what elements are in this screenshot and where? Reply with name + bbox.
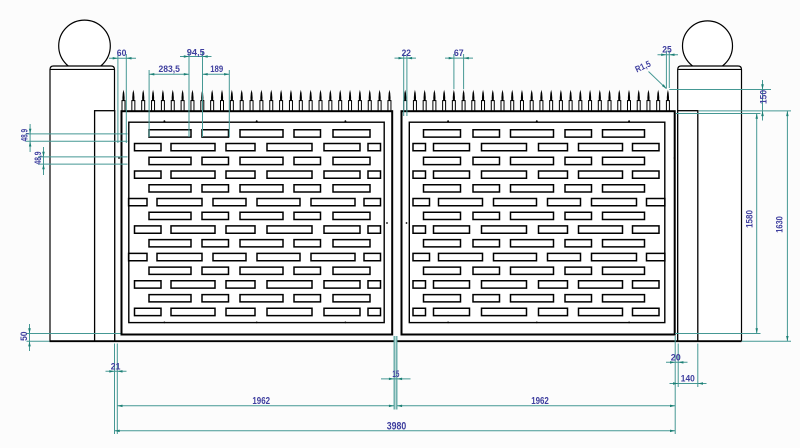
svg-text:50: 50 (19, 332, 29, 341)
svg-text:94,5: 94,5 (187, 47, 205, 57)
svg-text:1580: 1580 (744, 210, 754, 228)
svg-text:67: 67 (454, 48, 464, 58)
svg-text:1962: 1962 (531, 396, 549, 407)
svg-text:48,9: 48,9 (33, 152, 43, 165)
svg-text:48,9: 48,9 (19, 129, 29, 142)
svg-text:21: 21 (111, 362, 121, 372)
svg-text:140: 140 (681, 374, 695, 384)
svg-text:20: 20 (671, 352, 681, 362)
svg-text:25: 25 (662, 44, 671, 54)
svg-text:189: 189 (210, 64, 223, 74)
svg-text:283,5: 283,5 (158, 64, 180, 74)
svg-text:1630: 1630 (774, 216, 784, 233)
svg-text:1962: 1962 (252, 396, 270, 407)
svg-text:15: 15 (392, 369, 399, 379)
svg-text:3980: 3980 (387, 421, 407, 433)
svg-text:22: 22 (402, 48, 411, 58)
svg-text:60: 60 (117, 48, 127, 58)
svg-text:150: 150 (759, 90, 769, 104)
